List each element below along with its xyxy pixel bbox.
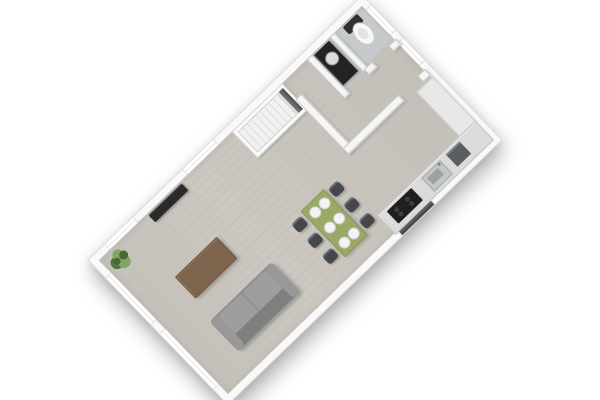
wood-floor xyxy=(99,6,491,394)
plan-drop-shadow xyxy=(0,0,600,400)
floor-plan xyxy=(89,0,501,400)
floor-plan-canvas xyxy=(0,0,600,400)
burner xyxy=(397,210,404,217)
burner xyxy=(408,200,415,207)
